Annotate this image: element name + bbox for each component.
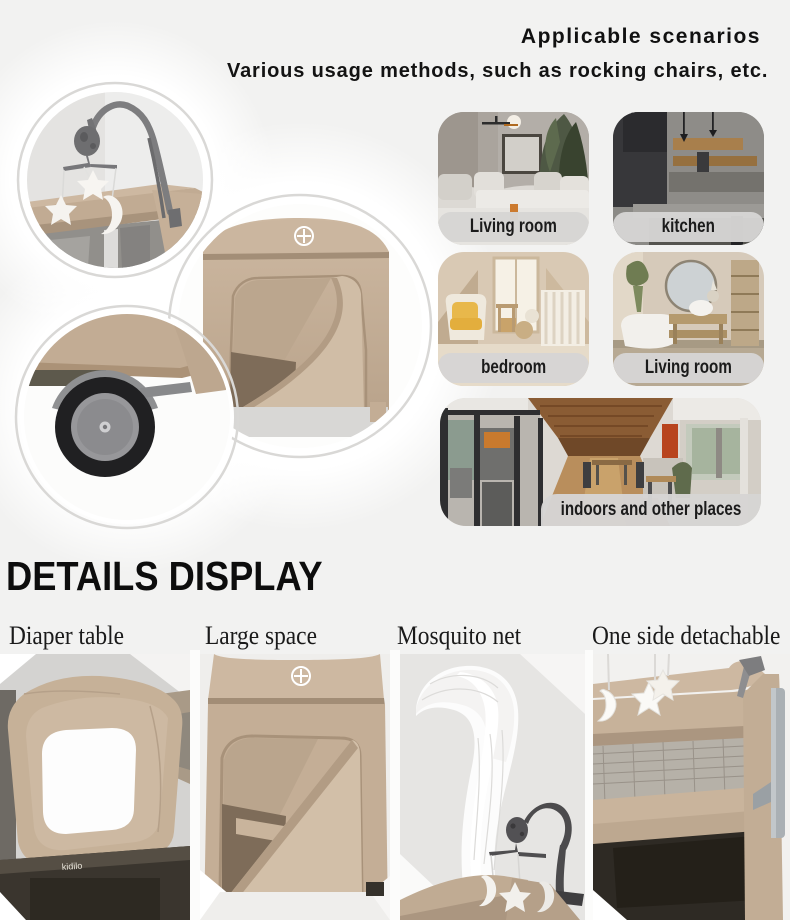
svg-text:kidilo: kidilo (61, 861, 82, 872)
